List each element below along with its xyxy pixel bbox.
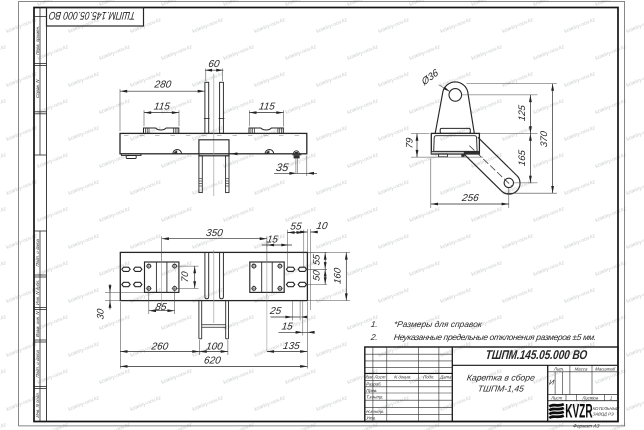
svg-text:Изм.: Изм. — [364, 374, 374, 379]
svg-text:55: 55 — [290, 221, 303, 232]
svg-text:160: 160 — [332, 267, 343, 285]
svg-text:620: 620 — [203, 355, 222, 366]
svg-text:Масса: Масса — [574, 366, 588, 371]
svg-text:1.: 1. — [370, 319, 378, 329]
svg-text:2.: 2. — [369, 332, 378, 342]
svg-text:ТШПМ-1,45: ТШПМ-1,45 — [477, 384, 525, 394]
svg-text:KVZR: KVZR — [565, 401, 592, 422]
svg-text:Подп. и дата: Подп. и дата — [35, 349, 40, 378]
svg-text:370: 370 — [539, 130, 550, 148]
svg-text:125: 125 — [517, 104, 528, 122]
svg-text:Н.контр.: Н.контр. — [366, 409, 385, 414]
svg-text:115: 115 — [258, 102, 276, 113]
svg-text:15: 15 — [281, 321, 294, 332]
svg-text:256: 256 — [460, 193, 480, 204]
svg-text:Перв. примен.: Перв. примен. — [35, 25, 40, 55]
svg-text:КОТЕЛЬНЫЙ: КОТЕЛЬНЫЙ — [592, 406, 620, 411]
svg-text:60: 60 — [208, 59, 221, 70]
svg-text:10: 10 — [316, 221, 329, 232]
svg-text:Формат А3: Формат А3 — [573, 424, 600, 430]
svg-text:N докум.: N докум. — [394, 374, 412, 379]
svg-text:Разраб.: Разраб. — [366, 381, 382, 386]
svg-text:Инв. N подл.: Инв. N подл. — [35, 392, 40, 418]
svg-text:Утв.: Утв. — [366, 415, 376, 420]
svg-text:Пров.: Пров. — [366, 388, 378, 393]
svg-text:350: 350 — [205, 228, 224, 239]
svg-text:Листов: Листов — [581, 395, 599, 400]
svg-text:260: 260 — [150, 341, 170, 352]
svg-text:Масштаб: Масштаб — [595, 366, 616, 371]
svg-text:Лист: Лист — [373, 374, 386, 379]
svg-text:ТШПМ.145.05.000 ВО: ТШПМ.145.05.000 ВО — [48, 8, 136, 20]
svg-text:Взам. инв. N: Взам. инв. N — [35, 310, 40, 337]
svg-text:85: 85 — [155, 302, 168, 313]
svg-text:Неуказанные предельные отклоне: Неуказанные предельные отклонения размер… — [393, 332, 596, 342]
svg-text:Каретка в сборе: Каретка в сборе — [466, 372, 536, 382]
svg-text:100: 100 — [205, 341, 224, 352]
svg-text:165: 165 — [517, 149, 528, 167]
svg-text:Справ. N: Справ. N — [35, 78, 40, 98]
svg-text:ТШПМ.145.05.000 ВО: ТШПМ.145.05.000 ВО — [485, 349, 588, 362]
svg-text:Подп. и дата: Подп. и дата — [35, 238, 40, 267]
svg-text:Дата: Дата — [439, 374, 453, 379]
svg-text:25: 25 — [268, 306, 282, 317]
svg-text:ЗАВОД РЭ: ЗАВОД РЭ — [592, 412, 614, 417]
svg-text:280: 280 — [153, 79, 173, 90]
svg-text:*Размеры для справок: *Размеры для справок — [393, 319, 483, 329]
svg-text:Инв. N дубл.: Инв. N дубл. — [35, 279, 40, 305]
svg-text:Т.контр.: Т.контр. — [366, 394, 384, 399]
svg-text:Подп.: Подп. — [423, 374, 435, 379]
svg-text:115: 115 — [153, 102, 171, 113]
svg-text:Лит.: Лит. — [553, 366, 565, 371]
svg-text:Лист: Лист — [550, 395, 563, 400]
svg-text:15: 15 — [266, 234, 279, 245]
svg-text:135: 135 — [282, 341, 301, 352]
